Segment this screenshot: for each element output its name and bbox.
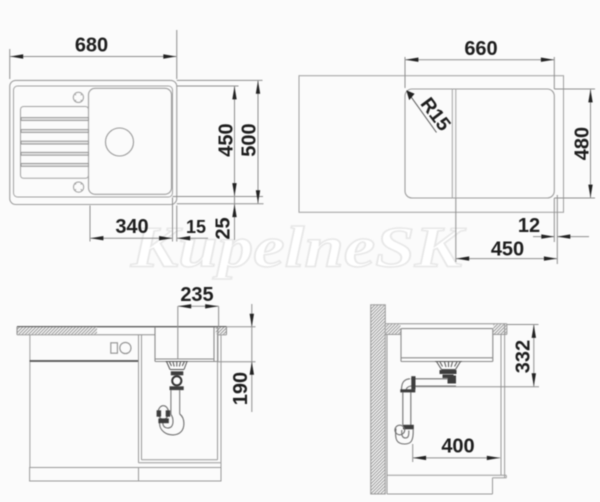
svg-text:450: 450 bbox=[216, 123, 238, 156]
svg-text:190: 190 bbox=[230, 372, 252, 405]
svg-text:12: 12 bbox=[518, 215, 540, 237]
svg-text:500: 500 bbox=[239, 123, 261, 156]
svg-text:332: 332 bbox=[513, 340, 535, 373]
svg-text:15: 15 bbox=[186, 217, 206, 237]
svg-text:R15: R15 bbox=[416, 93, 455, 135]
svg-text:680: 680 bbox=[75, 35, 108, 57]
svg-text:660: 660 bbox=[464, 38, 497, 60]
svg-text:KupelneSK: KupelneSK bbox=[130, 215, 466, 280]
svg-text:235: 235 bbox=[180, 284, 213, 306]
svg-text:400: 400 bbox=[441, 436, 474, 458]
svg-text:25: 25 bbox=[213, 217, 235, 239]
svg-text:340: 340 bbox=[115, 216, 148, 238]
svg-text:450: 450 bbox=[491, 239, 524, 261]
svg-text:480: 480 bbox=[572, 127, 594, 160]
